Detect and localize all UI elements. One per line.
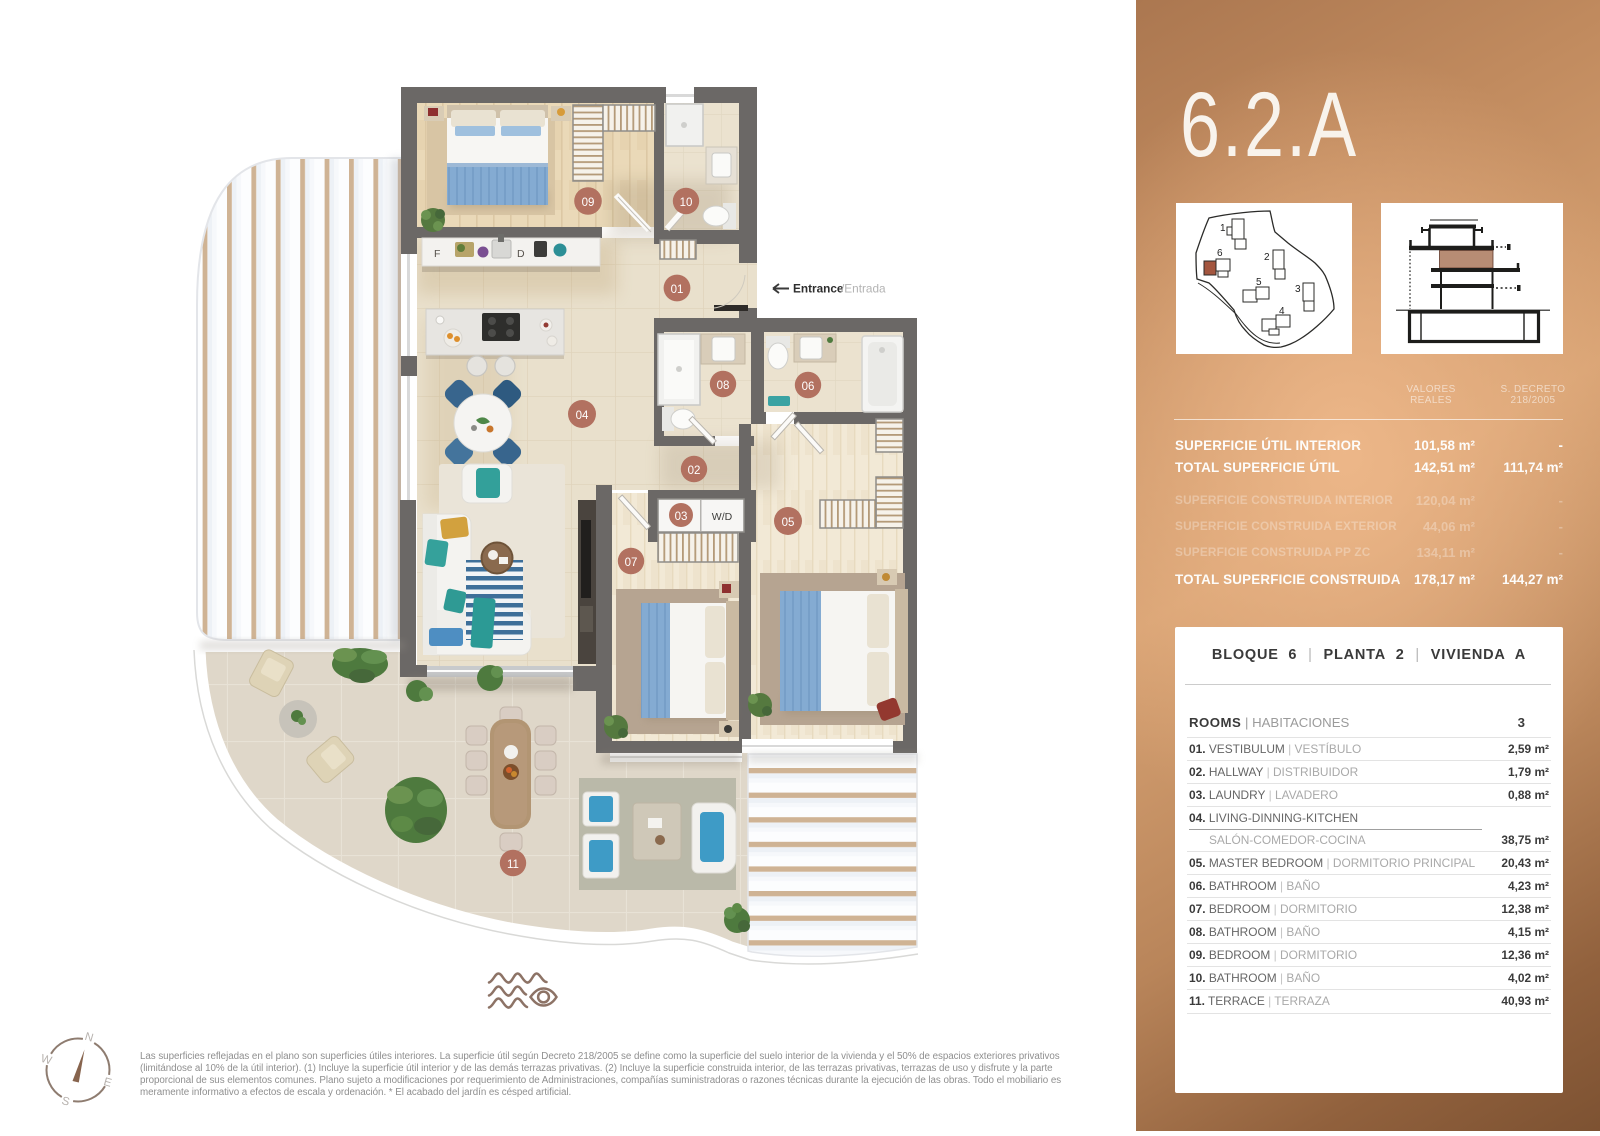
svg-text:F: F <box>434 248 440 260</box>
svg-text:1: 1 <box>1220 223 1226 234</box>
svg-text:09: 09 <box>582 197 595 209</box>
svg-text:4: 4 <box>1279 306 1285 317</box>
svg-text:04: 04 <box>576 410 589 422</box>
svg-text:10: 10 <box>680 197 693 209</box>
svg-text:03: 03 <box>675 511 688 523</box>
svg-text:Entrance: Entrance <box>793 282 844 296</box>
svg-text:6: 6 <box>1217 248 1223 259</box>
svg-text:2: 2 <box>1264 252 1270 263</box>
svg-text:05: 05 <box>782 517 795 529</box>
svg-text:5: 5 <box>1256 277 1262 288</box>
svg-text:S: S <box>60 1095 71 1109</box>
svg-text:3: 3 <box>1295 284 1301 295</box>
svg-text:D: D <box>517 248 525 260</box>
svg-text:11: 11 <box>507 859 519 871</box>
svg-text:02: 02 <box>688 465 701 477</box>
svg-text:W: W <box>39 1053 53 1068</box>
svg-text:E: E <box>102 1076 113 1090</box>
svg-text:07: 07 <box>625 557 638 569</box>
svg-text:06: 06 <box>802 381 815 393</box>
svg-text:01: 01 <box>671 284 684 296</box>
svg-text:/Entrada: /Entrada <box>841 282 886 296</box>
svg-text:N: N <box>83 1031 94 1045</box>
svg-text:08: 08 <box>717 380 730 392</box>
svg-text:W/D: W/D <box>712 511 733 523</box>
